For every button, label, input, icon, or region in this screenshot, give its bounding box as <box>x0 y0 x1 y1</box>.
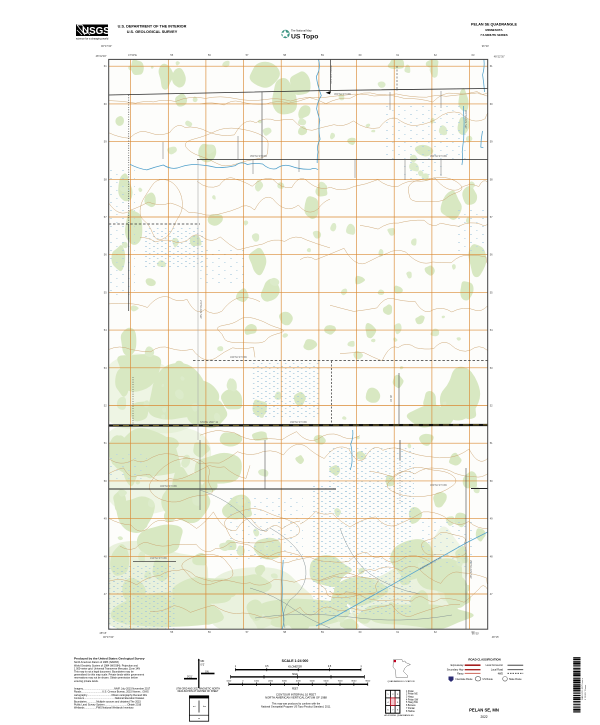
svg-text:290TH AVE NW: 290TH AVE NW <box>329 65 333 84</box>
svg-text:270TH AVE NW: 270TH AVE NW <box>199 300 203 319</box>
svg-text:Interstate Route: Interstate Route <box>456 678 474 681</box>
svg-text:National Geospatial Program US: National Geospatial Program US Topo Prod… <box>261 706 331 709</box>
svg-text:U.S. DEPARTMENT OF THE INTERIO: U.S. DEPARTMENT OF THE INTERIOR <box>118 25 187 29</box>
svg-text:ISBN 978-1-60751-xxx-x: ISBN 978-1-60751-xxx-x <box>582 678 584 700</box>
svg-text:QUADRANGLE LOCATION: QUADRANGLE LOCATION <box>388 680 415 683</box>
svg-text:350TH ST NW: 350TH ST NW <box>250 154 267 158</box>
svg-text:5 Haug SW: 5 Haug SW <box>406 702 419 704</box>
svg-text:Ramp: Ramp <box>457 672 464 675</box>
svg-text:5000: 5000 <box>310 681 316 683</box>
svg-text:320TH ST NW: 320TH ST NW <box>430 483 447 487</box>
svg-text:The National Map: The National Map <box>291 29 312 33</box>
svg-text:7000: 7000 <box>338 681 344 683</box>
svg-text:State Route: State Route <box>509 678 522 681</box>
svg-text:science for a changing world: science for a changing world <box>76 36 109 40</box>
svg-text:JD 30: JD 30 <box>389 395 393 402</box>
svg-text:Wetlands.................FWS: Wetlands.................FWS National We… <box>74 707 134 710</box>
svg-text:350TH ST NW: 350TH ST NW <box>430 154 447 158</box>
svg-text:6000: 6000 <box>324 681 330 683</box>
svg-text:1000: 1000 <box>254 681 260 683</box>
svg-text:Local Connector: Local Connector <box>486 664 504 667</box>
svg-text:DECLINATION AT CENTER OF SHEET: DECLINATION AT CENTER OF SHEET <box>178 690 219 693</box>
svg-text:360TH ST NW: 360TH ST NW <box>334 92 351 96</box>
svg-text:1 Pelan: 1 Pelan <box>406 691 415 693</box>
svg-text:340TH ST NW: 340TH ST NW <box>230 355 247 359</box>
svg-text:0°21': 0°21' <box>187 676 193 679</box>
svg-text:USGS: USGS <box>82 26 110 37</box>
svg-text:96°30': 96°30' <box>482 44 490 48</box>
svg-text:3000: 3000 <box>282 681 288 683</box>
svg-text:9000: 9000 <box>365 681 371 683</box>
svg-text:330TH ST NW: 330TH ST NW <box>290 420 307 424</box>
svg-text:Local Road: Local Road <box>491 669 504 672</box>
svg-text:m: m <box>198 718 200 720</box>
svg-text:SCALE 1:24 000: SCALE 1:24 000 <box>282 659 309 663</box>
svg-text:PELAN SE, MN: PELAN SE, MN <box>469 708 499 713</box>
svg-text:2022: 2022 <box>480 715 487 719</box>
svg-text:9 781607 51xxxx: 9 781607 51xxxx <box>585 685 587 700</box>
svg-text:UTM GRID AND 2022 MAGNETIC NOR: UTM GRID AND 2022 MAGNETIC NORTH <box>176 687 220 690</box>
svg-text:48°15': 48°15' <box>99 631 107 635</box>
svg-text:KILOMETER: KILOMETER <box>288 665 302 668</box>
svg-text:US Route: US Route <box>483 678 494 681</box>
svg-text:1000: 1000 <box>226 681 232 683</box>
svg-text:GN: GN <box>205 670 209 673</box>
svg-text:NORTH AMERICAN VERTICAL DATUM: NORTH AMERICAN VERTICAL DATUM OF 1988 <box>265 696 327 700</box>
svg-text:Secondary Hwy: Secondary Hwy <box>447 669 465 672</box>
svg-text:entering private lands.: entering private lands. <box>74 680 99 683</box>
svg-text:6 Boness: 6 Boness <box>406 705 416 707</box>
svg-text:96°37'30": 96°37'30" <box>103 635 114 639</box>
svg-text:Produced by the United States: Produced by the United States Geological… <box>74 657 145 661</box>
svg-text:ADJOINING QUADRANGLES: ADJOINING QUADRANGLES <box>384 714 414 717</box>
svg-text:310TH ST NW: 310TH ST NW <box>150 556 167 560</box>
svg-text:48°15': 48°15' <box>492 635 500 639</box>
svg-text:48°22'30": 48°22'30" <box>96 54 107 58</box>
svg-text:U.S. GEOLOGICAL SURVEY: U.S. GEOLOGICAL SURVEY <box>127 30 178 34</box>
svg-text:7 Florian: 7 Florian <box>406 707 416 710</box>
svg-text:Expressway: Expressway <box>451 664 465 667</box>
svg-text:4000: 4000 <box>296 681 302 683</box>
svg-text:2 Pelan NE: 2 Pelan NE <box>406 694 418 696</box>
svg-text:km: km <box>203 706 206 708</box>
svg-text:7.5-MINUTE SERIES: 7.5-MINUTE SERIES <box>480 33 508 37</box>
svg-text:STATE HWY 11: STATE HWY 11 <box>200 420 219 424</box>
svg-text:4WD: 4WD <box>498 672 504 675</box>
svg-text:8 Halma: 8 Halma <box>406 711 415 713</box>
svg-text:4 Pelan SW: 4 Pelan SW <box>406 699 419 701</box>
svg-text:320TH ST NW: 320TH ST NW <box>160 484 177 488</box>
svg-text:300TH AVE NW: 300TH AVE NW <box>464 110 468 129</box>
svg-text:PELAN SE QUADRANGLE: PELAN SE QUADRANGLE <box>471 23 517 27</box>
svg-text:ROAD CLASSIFICATION: ROAD CLASSIFICATION <box>468 658 500 662</box>
svg-text:0°2': 0°2' <box>201 664 206 667</box>
svg-text:3 Haug: 3 Haug <box>406 697 414 699</box>
svg-text:96°37'30": 96°37'30" <box>101 44 112 48</box>
svg-text:290TH AVE NW: 290TH AVE NW <box>469 560 473 579</box>
svg-text:US Topo: US Topo <box>291 34 318 41</box>
svg-text:2000: 2000 <box>268 681 274 683</box>
svg-text:8000: 8000 <box>351 681 357 683</box>
svg-text:48°22'30": 48°22'30" <box>494 55 505 59</box>
svg-text:47'30"E: 47'30"E <box>128 53 137 57</box>
svg-text:MINNESOTA: MINNESOTA <box>485 28 503 32</box>
svg-text:FEET: FEET <box>292 687 299 690</box>
